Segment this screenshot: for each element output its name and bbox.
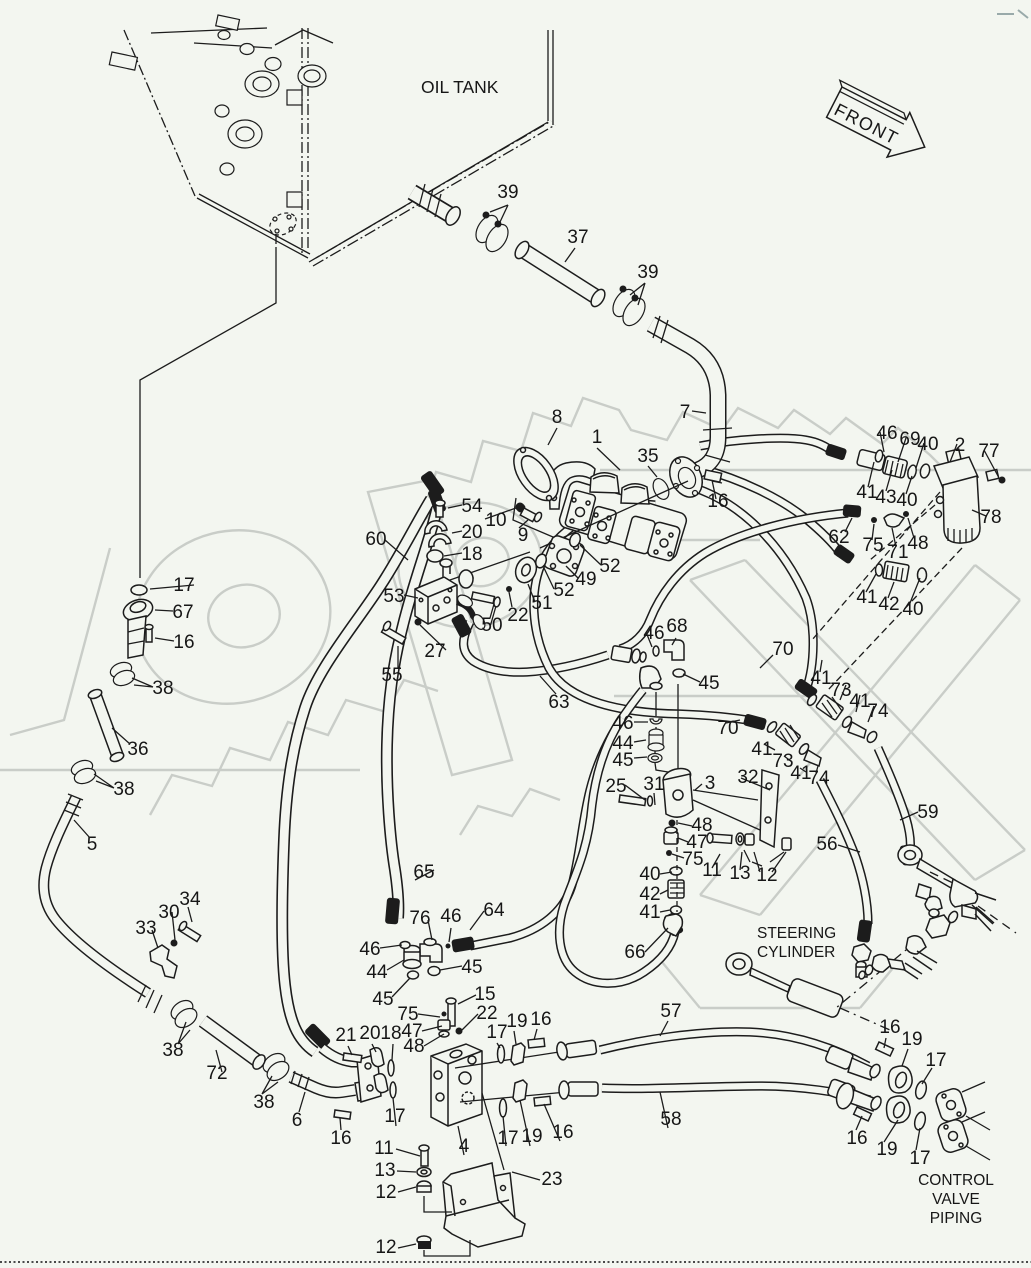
svg-text:41: 41 [639, 902, 660, 923]
svg-text:66: 66 [624, 942, 645, 963]
svg-text:15: 15 [474, 984, 495, 1005]
svg-text:20: 20 [461, 522, 482, 543]
svg-text:52: 52 [599, 556, 620, 577]
svg-text:74: 74 [808, 768, 830, 789]
svg-text:44: 44 [366, 962, 388, 983]
svg-text:46: 46 [876, 423, 897, 444]
svg-text:49: 49 [575, 569, 596, 590]
svg-text:75: 75 [862, 535, 883, 556]
svg-text:25: 25 [605, 776, 626, 797]
svg-text:17: 17 [925, 1050, 946, 1071]
svg-text:46: 46 [440, 906, 461, 927]
svg-text:19: 19 [901, 1029, 922, 1050]
svg-text:35: 35 [637, 446, 658, 467]
svg-text:31: 31 [643, 774, 664, 795]
svg-text:59: 59 [917, 802, 938, 823]
svg-text:16: 16 [552, 1122, 573, 1143]
svg-text:1: 1 [592, 427, 603, 448]
svg-text:STEERING: STEERING [757, 925, 836, 942]
svg-text:38: 38 [253, 1092, 274, 1113]
svg-text:63: 63 [548, 692, 569, 713]
svg-text:11: 11 [374, 1138, 394, 1159]
svg-text:76: 76 [409, 908, 430, 929]
svg-text:53: 53 [383, 586, 404, 607]
svg-text:45: 45 [372, 989, 393, 1010]
svg-text:32: 32 [737, 767, 758, 788]
svg-text:6: 6 [292, 1110, 303, 1131]
svg-text:60: 60 [365, 529, 386, 550]
svg-text:70: 70 [772, 639, 793, 660]
svg-text:45: 45 [461, 957, 482, 978]
svg-text:7: 7 [680, 402, 691, 423]
svg-text:64: 64 [483, 900, 505, 921]
svg-text:46: 46 [359, 939, 380, 960]
svg-text:17: 17 [486, 1022, 507, 1043]
svg-text:CONTROL: CONTROL [918, 1172, 994, 1189]
svg-text:40: 40 [902, 599, 923, 620]
svg-text:48: 48 [907, 533, 928, 554]
svg-text:12: 12 [375, 1237, 396, 1258]
svg-text:19: 19 [521, 1126, 542, 1147]
svg-text:78: 78 [980, 507, 1001, 528]
svg-text:41: 41 [810, 668, 831, 689]
svg-text:27: 27 [424, 641, 445, 662]
svg-text:72: 72 [206, 1063, 227, 1084]
svg-text:37: 37 [567, 227, 588, 248]
svg-text:OIL TANK: OIL TANK [421, 77, 499, 97]
svg-text:57: 57 [660, 1001, 681, 1022]
svg-text:71: 71 [887, 542, 908, 563]
svg-text:16: 16 [879, 1017, 900, 1038]
svg-text:38: 38 [162, 1040, 183, 1061]
svg-text:13: 13 [374, 1160, 395, 1181]
svg-text:58: 58 [660, 1109, 681, 1130]
svg-text:16: 16 [173, 632, 194, 653]
svg-text:74: 74 [867, 701, 889, 722]
svg-text:19: 19 [506, 1011, 527, 1032]
svg-text:18: 18 [461, 544, 482, 565]
svg-text:75: 75 [682, 849, 703, 870]
svg-text:12: 12 [375, 1182, 396, 1203]
svg-text:45: 45 [698, 673, 719, 694]
svg-text:41: 41 [856, 482, 877, 503]
svg-text:68: 68 [666, 616, 687, 637]
svg-text:22: 22 [507, 605, 528, 626]
svg-text:52: 52 [553, 580, 574, 601]
svg-text:17: 17 [909, 1148, 930, 1169]
svg-text:11: 11 [702, 860, 722, 881]
svg-text:38: 38 [113, 779, 134, 800]
svg-text:67: 67 [172, 602, 193, 623]
svg-text:19: 19 [876, 1139, 897, 1160]
svg-text:36: 36 [127, 739, 148, 760]
svg-text:54: 54 [461, 496, 483, 517]
svg-text:48: 48 [403, 1036, 424, 1057]
svg-text:45: 45 [612, 750, 633, 771]
svg-text:16: 16 [846, 1128, 867, 1149]
svg-text:8: 8 [552, 407, 563, 428]
svg-text:56: 56 [816, 834, 837, 855]
svg-text:20: 20 [359, 1023, 380, 1044]
svg-text:21: 21 [335, 1025, 356, 1046]
svg-text:17: 17 [497, 1128, 518, 1149]
svg-text:VALVE: VALVE [932, 1191, 980, 1208]
svg-text:51: 51 [531, 593, 552, 614]
svg-text:PIPING: PIPING [930, 1210, 983, 1227]
svg-text:30: 30 [158, 902, 179, 923]
svg-text:16: 16 [530, 1009, 551, 1030]
svg-text:22: 22 [476, 1003, 497, 1024]
svg-text:16: 16 [707, 491, 728, 512]
svg-text:18: 18 [380, 1023, 401, 1044]
svg-text:38: 38 [152, 678, 173, 699]
svg-text:34: 34 [179, 889, 201, 910]
svg-text:46: 46 [612, 713, 633, 734]
svg-text:55: 55 [381, 665, 402, 686]
svg-text:40: 40 [896, 490, 917, 511]
svg-text:39: 39 [637, 262, 658, 283]
svg-text:40: 40 [639, 864, 660, 885]
svg-text:39: 39 [497, 182, 518, 203]
svg-text:41: 41 [751, 739, 772, 760]
svg-text:CYLINDER: CYLINDER [757, 944, 835, 961]
svg-text:5: 5 [87, 834, 98, 855]
svg-text:16: 16 [330, 1128, 351, 1149]
svg-text:23: 23 [541, 1169, 562, 1190]
svg-text:3: 3 [705, 773, 716, 794]
